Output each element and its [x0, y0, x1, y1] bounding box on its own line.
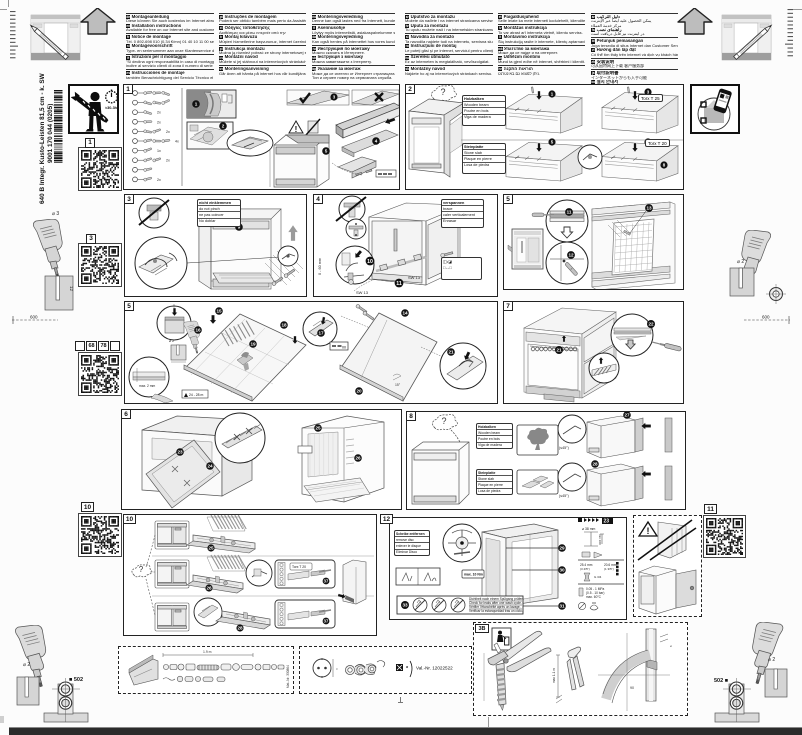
svg-text:≈: ≈ — [336, 667, 338, 671]
svg-text:G 3/4: G 3/4 — [594, 575, 602, 579]
svg-text:10: 10 — [367, 259, 373, 265]
svg-text:4: 4 — [375, 139, 378, 144]
svg-text:*: * — [406, 666, 409, 672]
svg-text:00: 00 — [342, 346, 346, 350]
svg-text:?: ? — [441, 416, 446, 426]
svg-text:SW 13: SW 13 — [356, 290, 369, 295]
svg-text:600: 600 — [762, 315, 770, 320]
svg-text:max. 60°C: max. 60°C — [586, 595, 602, 599]
svg-text:11: 11 — [396, 281, 402, 287]
svg-text:Verificar la estanqueidad tras: Verificar la estanqueidad tras un ciclo. — [469, 609, 523, 613]
svg-text:15: 15 — [216, 309, 222, 314]
svg-text:22: 22 — [648, 322, 654, 327]
svg-text:?: ? — [440, 87, 445, 97]
svg-text:⌀ 38 mm: ⌀ 38 mm — [582, 527, 596, 531]
svg-text:1: 1 — [195, 102, 198, 107]
svg-text:37: 37 — [324, 579, 329, 584]
svg-text:26: 26 — [355, 456, 361, 461]
svg-text:5: 5 — [325, 149, 328, 154]
svg-text:24 - 28 m: 24 - 28 m — [189, 393, 203, 397]
svg-text:2: 2 — [222, 124, 225, 129]
svg-text:2x: 2x — [157, 120, 161, 124]
svg-text:25: 25 — [208, 546, 214, 551]
svg-text:2x: 2x — [166, 130, 170, 134]
svg-text:18: 18 — [281, 323, 287, 328]
svg-text:max. 2 mm: max. 2 mm — [139, 384, 156, 388]
svg-text:600: 600 — [30, 315, 38, 320]
svg-text:(≤45°): (≤45°) — [559, 494, 569, 498]
svg-text:27: 27 — [624, 413, 630, 418]
svg-text:?: ? — [139, 565, 144, 574]
svg-text:24: 24 — [207, 464, 213, 469]
svg-text:23: 23 — [177, 450, 183, 455]
svg-text:90: 90 — [630, 686, 634, 690]
svg-text:max 1.1 m: max 1.1 m — [552, 668, 556, 683]
svg-text:SW 13: SW 13 — [408, 275, 421, 280]
svg-text:(≤45°): (≤45°) — [559, 446, 569, 450]
svg-text:⌀: ⌀ — [670, 644, 672, 648]
svg-text:24: 24 — [203, 436, 209, 441]
svg-text:21: 21 — [448, 350, 454, 355]
svg-text:(1 3/5"): (1 3/5") — [604, 567, 614, 571]
svg-text:28: 28 — [237, 626, 243, 631]
svg-text:14: 14 — [402, 311, 408, 316]
svg-text:max. 10 Nm: max. 10 Nm — [464, 573, 483, 577]
svg-text:min 100: min 100 — [598, 534, 602, 545]
svg-text:4x: 4x — [175, 140, 179, 144]
svg-text:⌀ 2: ⌀ 2 — [169, 339, 174, 343]
svg-text:30: 30 — [559, 568, 565, 573]
svg-text:26: 26 — [206, 586, 212, 591]
svg-text:2x: 2x — [157, 111, 161, 115]
svg-text:29: 29 — [559, 546, 565, 551]
svg-text:28: 28 — [592, 462, 598, 467]
svg-text:(3 4/5"): (3 4/5") — [580, 567, 590, 571]
svg-text:2x: 2x — [157, 178, 161, 182]
svg-text:15°: 15° — [395, 383, 401, 387]
svg-text:37: 37 — [324, 619, 329, 624]
svg-text:≈30-3h: ≈30-3h — [105, 106, 118, 110]
svg-text:31: 31 — [559, 604, 565, 609]
svg-text:1x: 1x — [157, 149, 161, 153]
svg-text:25: 25 — [315, 426, 321, 431]
svg-text:Mat.-Nr. 330864: Mat.-Nr. 330864 — [286, 665, 290, 688]
svg-text:17: 17 — [318, 331, 324, 336]
svg-text:12: 12 — [568, 253, 574, 258]
svg-text:23: 23 — [604, 519, 610, 525]
svg-text:!: ! — [295, 125, 298, 134]
svg-text:20: 20 — [356, 389, 362, 394]
svg-text:13: 13 — [646, 206, 652, 211]
svg-text:16: 16 — [195, 328, 201, 333]
svg-text:Torx T 20: Torx T 20 — [292, 565, 306, 569]
svg-text:2x: 2x — [166, 159, 170, 163]
svg-text:1.9 m: 1.9 m — [203, 650, 212, 654]
svg-text:33: 33 — [402, 603, 408, 608]
svg-text:11: 11 — [567, 210, 572, 215]
svg-text:!: ! — [647, 526, 650, 536]
svg-text:0 - 60 mm: 0 - 60 mm — [318, 258, 322, 275]
svg-text:19: 19 — [250, 342, 256, 347]
svg-text:Val.-Nr. 12022522: Val.-Nr. 12022522 — [416, 666, 453, 671]
svg-text:21: 21 — [556, 348, 562, 353]
